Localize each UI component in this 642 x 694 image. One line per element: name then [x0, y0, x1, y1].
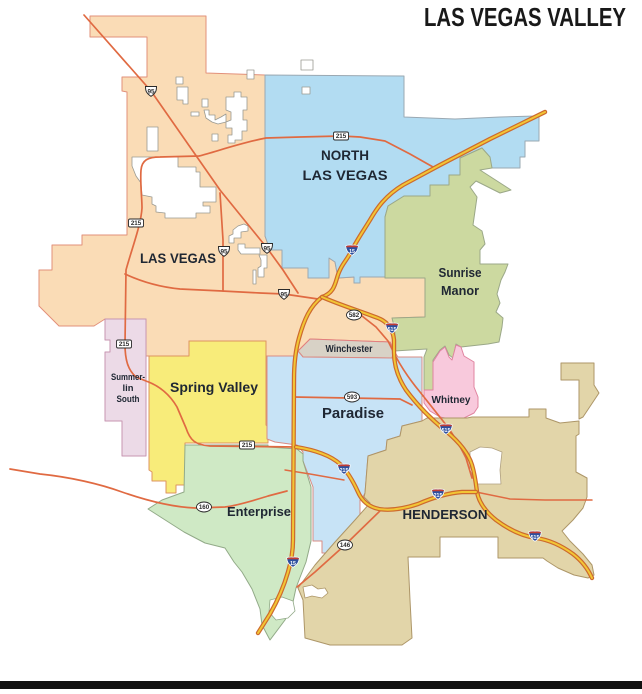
svg-text:215: 215	[336, 133, 347, 140]
svg-text:Summer-: Summer-	[111, 372, 145, 382]
svg-text:95: 95	[220, 248, 228, 255]
svg-text:95: 95	[147, 88, 155, 95]
svg-text:146: 146	[340, 542, 351, 549]
svg-text:15: 15	[349, 249, 355, 255]
svg-text:Spring Valley: Spring Valley	[170, 380, 258, 395]
svg-text:95: 95	[280, 291, 288, 298]
svg-text:LAS VEGAS VALLEY: LAS VEGAS VALLEY	[424, 2, 626, 32]
svg-text:Manor: Manor	[441, 284, 479, 298]
svg-text:Enterprise: Enterprise	[227, 505, 291, 519]
svg-text:582: 582	[349, 312, 360, 319]
svg-text:LAS VEGAS: LAS VEGAS	[303, 168, 388, 183]
svg-text:Winchester: Winchester	[326, 344, 373, 355]
svg-text:LAS VEGAS: LAS VEGAS	[140, 251, 216, 266]
svg-text:215: 215	[242, 442, 253, 449]
svg-text:160: 160	[199, 504, 210, 511]
svg-text:515: 515	[531, 535, 540, 541]
svg-text:15: 15	[290, 561, 296, 567]
svg-text:215: 215	[434, 493, 443, 499]
svg-text:515: 515	[388, 327, 397, 333]
svg-text:NORTH: NORTH	[321, 148, 369, 163]
svg-text:515: 515	[442, 428, 451, 434]
svg-text:Whitney: Whitney	[432, 395, 471, 406]
svg-text:215: 215	[119, 341, 130, 348]
svg-text:Sunrise: Sunrise	[439, 266, 482, 280]
svg-text:South: South	[117, 394, 140, 404]
svg-text:215: 215	[340, 468, 349, 474]
svg-text:lin: lin	[123, 383, 134, 393]
svg-text:Paradise: Paradise	[322, 406, 384, 422]
svg-text:593: 593	[347, 394, 358, 401]
svg-text:215: 215	[131, 220, 142, 227]
svg-text:HENDERSON: HENDERSON	[403, 507, 488, 522]
svg-text:95: 95	[263, 245, 271, 252]
